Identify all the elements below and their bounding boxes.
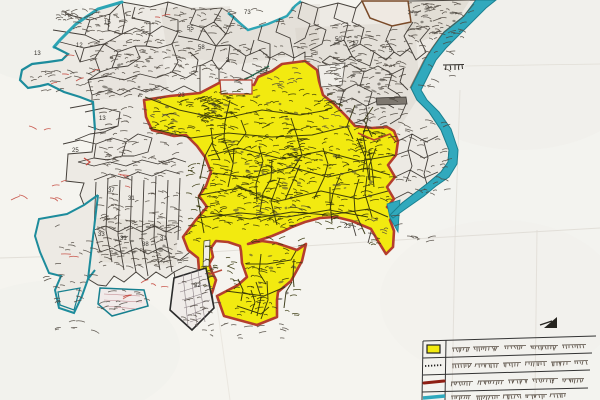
svg-text:15: 15: [104, 20, 111, 26]
svg-text:31: 31: [120, 236, 127, 242]
svg-text:73: 73: [244, 10, 251, 16]
svg-text:23: 23: [344, 224, 351, 230]
svg-text:25: 25: [72, 148, 79, 154]
svg-text:37: 37: [108, 188, 115, 194]
svg-text:13: 13: [34, 51, 41, 57]
svg-text:32: 32: [194, 283, 201, 289]
svg-text:50: 50: [335, 37, 342, 43]
svg-text:38: 38: [142, 242, 149, 248]
svg-text:12: 12: [76, 43, 83, 49]
svg-text:17: 17: [352, 41, 359, 47]
svg-text:58: 58: [198, 45, 205, 51]
svg-text:13: 13: [99, 116, 106, 122]
svg-text:33: 33: [98, 232, 105, 238]
svg-text:23: 23: [178, 93, 185, 99]
svg-text:55: 55: [187, 26, 194, 32]
svg-text:31: 31: [160, 236, 167, 242]
svg-text:31: 31: [128, 196, 135, 202]
